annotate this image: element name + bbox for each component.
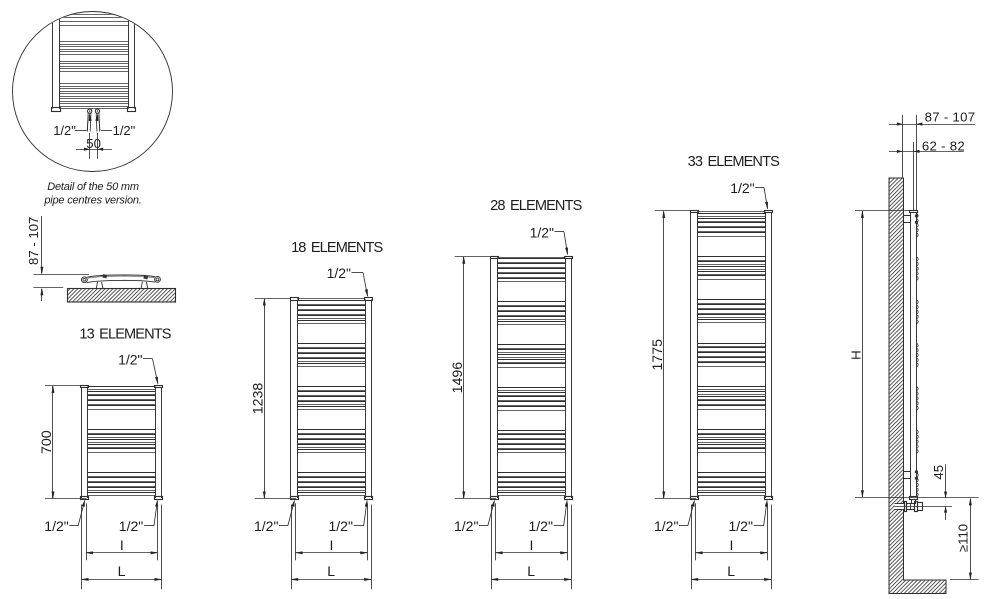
svg-text:13 ELEMENTS: 13 ELEMENTS: [79, 326, 171, 342]
svg-text:1238: 1238: [251, 383, 267, 415]
svg-text:50: 50: [86, 136, 101, 151]
svg-text:45: 45: [931, 465, 946, 480]
svg-text:700: 700: [39, 430, 55, 454]
svg-text:Detail of the 50 mm: Detail of the 50 mm: [47, 181, 139, 193]
svg-text:1/2": 1/2": [530, 225, 554, 241]
svg-text:1775: 1775: [650, 339, 666, 371]
svg-text:I: I: [329, 537, 333, 553]
svg-text:1/2": 1/2": [44, 518, 68, 534]
svg-text:1/2": 1/2": [119, 518, 143, 534]
svg-text:I: I: [530, 537, 534, 553]
svg-text:1/2": 1/2": [327, 265, 351, 281]
svg-text:28 ELEMENTS: 28 ELEMENTS: [490, 198, 582, 214]
svg-text:18 ELEMENTS: 18 ELEMENTS: [291, 240, 383, 256]
svg-text:87 - 107: 87 - 107: [925, 109, 976, 124]
svg-text:L: L: [118, 563, 126, 579]
svg-text:1/2": 1/2": [654, 518, 678, 534]
svg-text:33 ELEMENTS: 33 ELEMENTS: [688, 154, 780, 170]
svg-text:1/2": 1/2": [113, 123, 136, 138]
svg-text:1/2": 1/2": [254, 518, 278, 534]
svg-text:1/2": 1/2": [118, 352, 142, 368]
svg-text:1496: 1496: [450, 362, 466, 394]
svg-text:I: I: [120, 537, 124, 553]
svg-text:1/2": 1/2": [730, 180, 754, 196]
svg-text:87 - 107: 87 - 107: [26, 217, 41, 265]
svg-text:L: L: [527, 563, 535, 579]
svg-text:1/2": 1/2": [454, 518, 478, 534]
svg-text:1/2": 1/2": [729, 518, 753, 534]
svg-text:L: L: [327, 563, 335, 579]
svg-text:≥110: ≥110: [956, 524, 971, 552]
svg-text:1/2": 1/2": [53, 123, 76, 138]
svg-text:1/2": 1/2": [529, 518, 553, 534]
svg-text:pipe centres version.: pipe centres version.: [43, 194, 141, 206]
svg-text:H: H: [849, 350, 864, 360]
svg-text:62 - 82: 62 - 82: [922, 139, 965, 154]
svg-text:L: L: [727, 563, 735, 579]
svg-text:1/2": 1/2": [329, 518, 353, 534]
svg-text:I: I: [730, 537, 734, 553]
